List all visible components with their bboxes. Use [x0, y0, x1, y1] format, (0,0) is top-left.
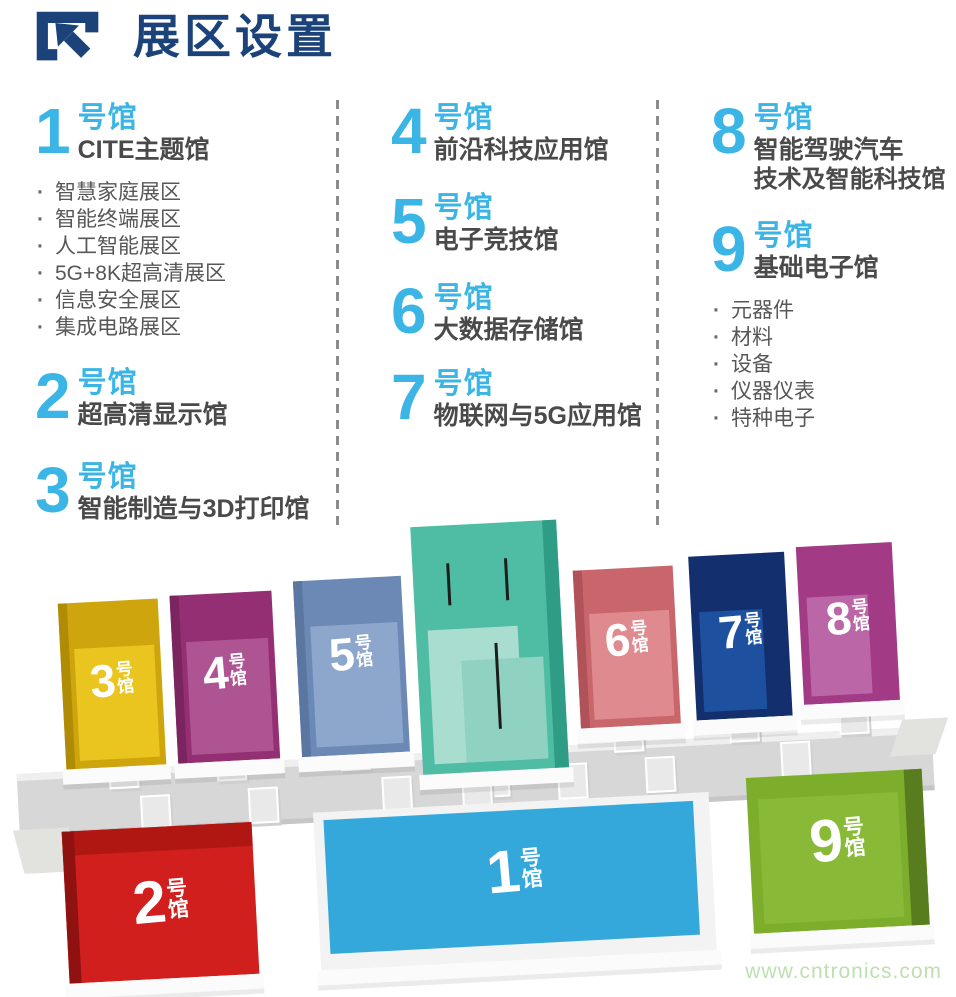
hall-suffix: 号馆	[434, 284, 584, 313]
hall-6-header: 6 号馆 大数据存储馆	[391, 283, 584, 345]
map-hall-3: 3 号馆	[58, 599, 167, 770]
venue-map: 3 号馆 4 号馆 5 号馆	[0, 500, 956, 997]
hall-name: 电子竞技馆	[434, 225, 559, 255]
hall-name: 物联网与5G应用馆	[434, 401, 642, 431]
hall-5-block: 5 号馆 电子竞技馆	[391, 193, 559, 255]
hall-suffix: 号馆	[78, 104, 210, 133]
hall-2-block: 2 号馆 超高清显示馆	[35, 368, 228, 430]
hall-8-header: 8 号馆 智能驾驶汽车 技术及智能科技馆	[711, 103, 946, 194]
map-hall-5: 5 号馆	[293, 576, 410, 757]
hall-7-block: 7 号馆 物联网与5G应用馆	[391, 369, 642, 431]
hall-number: 9	[711, 221, 745, 277]
map-hall-4: 4 号馆	[170, 591, 281, 764]
hall-7-header: 7 号馆 物联网与5G应用馆	[391, 369, 642, 431]
zone-item: ·人工智能展区	[37, 233, 226, 260]
column-divider	[656, 100, 659, 532]
hall-suffix: 号馆	[78, 369, 228, 398]
zone-item: ·信息安全展区	[37, 287, 226, 314]
hall-suffix: 号馆	[754, 222, 879, 251]
hall-suffix: 号馆	[434, 104, 609, 133]
hall-name-line-1: 智能驾驶汽车	[754, 135, 946, 165]
zone-item: ·智慧家庭展区	[37, 179, 226, 206]
connector-stub	[645, 756, 677, 794]
hall-4-header: 4 号馆 前沿科技应用馆	[391, 103, 609, 165]
page-title: 展区设置	[133, 8, 337, 66]
category-item: ·仪器仪表	[713, 378, 879, 405]
hall-name: 前沿科技应用馆	[434, 135, 609, 165]
column-divider	[336, 100, 339, 532]
hall-2-header: 2 号馆 超高清显示馆	[35, 368, 228, 430]
hall-1-zone-list: ·智慧家庭展区 ·智能终端展区 ·人工智能展区 ·5G+8K超高清展区 ·信息安…	[37, 179, 226, 341]
zone-item: ·智能终端展区	[37, 206, 226, 233]
hall-suffix: 号馆	[754, 104, 946, 133]
hall-4-block: 4 号馆 前沿科技应用馆	[391, 103, 609, 165]
hall-name: 基础电子馆	[754, 253, 879, 283]
hall-8-block: 8 号馆 智能驾驶汽车 技术及智能科技馆	[711, 103, 946, 194]
zone-item: ·5G+8K超高清展区	[37, 260, 226, 287]
corner-arrow-logo-icon	[33, 8, 117, 66]
hall-number: 6	[391, 283, 425, 339]
ramp-right	[890, 717, 949, 756]
hall-9-category-list: ·元器件 ·材料 ·设备 ·仪器仪表 ·特种电子	[713, 297, 879, 432]
map-hall-6-label: 6 号馆	[575, 614, 678, 665]
hall-9-header: 9 号馆 基础电子馆	[711, 221, 879, 283]
hall-suffix: 号馆	[78, 463, 310, 492]
map-hall-9: 9 号馆	[746, 769, 930, 934]
zone-item: ·集成电路展区	[37, 314, 226, 341]
hall-1-header: 1 号馆 CITE主题馆	[35, 103, 226, 165]
map-hall-2: 2 号馆	[62, 822, 260, 984]
hall-number: 7	[391, 369, 425, 425]
hall-name: 超高清显示馆	[78, 400, 228, 430]
hall-1-block: 1 号馆 CITE主题馆 ·智慧家庭展区 ·智能终端展区 ·人工智能展区 ·5G…	[35, 103, 226, 341]
category-item: ·元器件	[713, 297, 879, 324]
hall-number: 2	[35, 368, 69, 424]
category-item: ·设备	[713, 351, 879, 378]
site-watermark: www.cntronics.com	[745, 960, 942, 984]
map-hall-3-label: 3 号馆	[60, 655, 163, 706]
hall-suffix: 号馆	[434, 194, 559, 223]
header: 展区设置	[33, 8, 337, 66]
map-hall-8: 8 号馆	[796, 542, 900, 705]
connector-stub	[248, 787, 280, 825]
map-hall-6: 6 号馆	[573, 566, 681, 729]
hall-number: 4	[391, 103, 425, 159]
hall-5-header: 5 号馆 电子竞技馆	[391, 193, 559, 255]
map-hall-1: 1 号馆	[313, 792, 717, 971]
map-hall-7: 7 号馆	[688, 552, 792, 721]
hall-name: CITE主题馆	[78, 135, 210, 165]
map-hall-7-label: 7 号馆	[690, 606, 789, 656]
category-item: ·特种电子	[713, 405, 879, 432]
category-item: ·材料	[713, 324, 879, 351]
connector-stub	[780, 741, 812, 779]
map-hall-4-label: 4 号馆	[172, 647, 277, 698]
hall-number: 5	[391, 193, 425, 249]
hall-suffix: 号馆	[434, 370, 642, 399]
exhibition-layout-infographic: 展区设置 1 号馆 CITE主题馆 ·智慧家庭展区 ·智能终端展区 ·人工智能展…	[0, 0, 956, 997]
map-central-hall	[410, 520, 569, 775]
hall-name: 大数据存储馆	[434, 315, 584, 345]
hall-number: 8	[711, 103, 745, 159]
venue-map-tilted: 3 号馆 4 号馆 5 号馆	[0, 486, 956, 997]
hall-9-block: 9 号馆 基础电子馆 ·元器件 ·材料 ·设备 ·仪器仪表 ·特种电子	[711, 221, 879, 432]
hall-number: 1	[35, 103, 69, 159]
hall-6-block: 6 号馆 大数据存储馆	[391, 283, 584, 345]
hall-name-line-2: 技术及智能科技馆	[754, 165, 946, 194]
map-hall-8-label: 8 号馆	[798, 592, 897, 642]
